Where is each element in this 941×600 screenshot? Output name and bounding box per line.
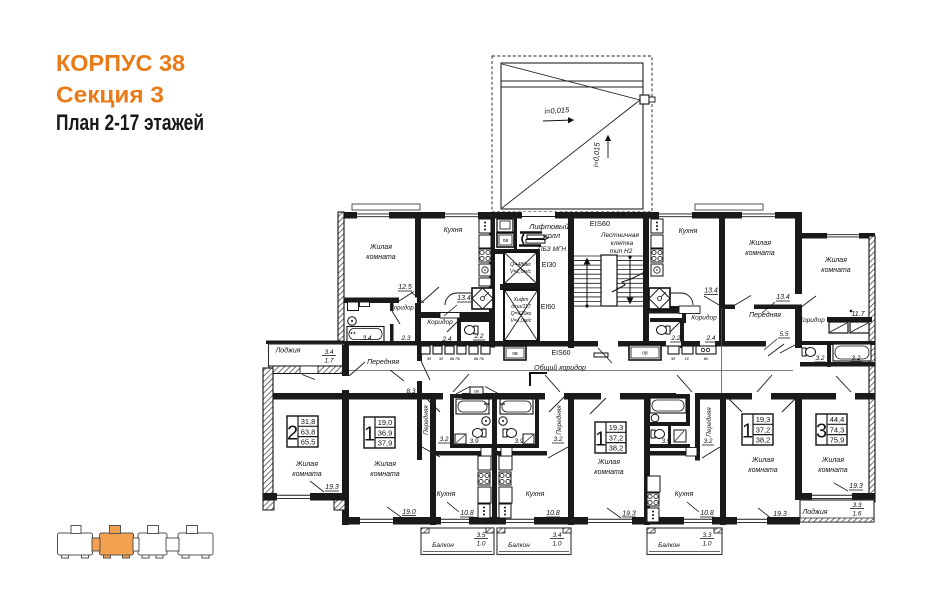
svg-text:19.0: 19.0: [402, 509, 416, 516]
svg-text:Жилая: Жилая: [748, 240, 771, 247]
svg-text:Передняя: Передняя: [749, 311, 781, 319]
svg-text:ПБЗ МГН: ПБЗ МГН: [538, 246, 567, 253]
svg-text:3.2: 3.2: [703, 438, 712, 445]
svg-text:13.4: 13.4: [704, 288, 718, 295]
svg-text:5.5: 5.5: [779, 331, 788, 338]
svg-text:Хифт: Хифт: [512, 297, 529, 303]
svg-text:37,2: 37,2: [756, 425, 771, 434]
svg-text:Жилая: Жилая: [295, 461, 318, 468]
svg-text:Жилая: Жилая: [751, 457, 774, 464]
svg-text:План 2-17 этажей: План 2-17 этажей: [56, 110, 204, 135]
svg-text:эл: эл: [671, 356, 676, 361]
svg-text:ов: ов: [512, 351, 518, 357]
svg-text:37,2: 37,2: [609, 433, 624, 442]
svg-text:3.2: 3.2: [439, 436, 448, 443]
svg-text:Лифтовый: Лифтовый: [528, 222, 569, 231]
svg-text:3.9: 3.9: [469, 438, 478, 445]
svg-text:Передняя: Передняя: [555, 405, 563, 435]
svg-text:Жилая: Жилая: [369, 244, 392, 251]
svg-text:Кухня: Кухня: [437, 491, 456, 498]
svg-text:3.3: 3.3: [702, 532, 711, 539]
svg-text:19.3: 19.3: [622, 511, 636, 518]
svg-text:2.2: 2.2: [670, 335, 680, 342]
svg-text:10.8: 10.8: [546, 510, 560, 517]
svg-text:19,3: 19,3: [609, 423, 624, 432]
svg-text:36,9: 36,9: [378, 428, 393, 437]
svg-text:65,5: 65,5: [301, 438, 316, 447]
svg-text:3.4: 3.4: [324, 349, 333, 356]
svg-text:Передняя: Передняя: [367, 358, 399, 366]
svg-text:10.8: 10.8: [460, 510, 474, 517]
svg-text:ов: ов: [503, 238, 509, 244]
svg-text:3.9: 3.9: [661, 438, 670, 445]
svg-text:V=1,0м/с: V=1,0м/с: [510, 318, 532, 324]
svg-text:19.3: 19.3: [325, 484, 339, 491]
svg-text:ЕІS60: ЕІS60: [590, 219, 610, 228]
svg-text:Жилая: Жилая: [824, 257, 847, 264]
svg-text:ов: ов: [474, 389, 479, 394]
svg-text:74,3: 74,3: [830, 425, 845, 434]
svg-text:2: 2: [287, 423, 298, 445]
svg-text:13.4: 13.4: [457, 295, 471, 302]
svg-text:Кухня: Кухня: [526, 491, 545, 498]
svg-text:Жилая: Жилая: [821, 457, 844, 464]
svg-text:3.9: 3.9: [514, 438, 523, 445]
svg-text:44,4: 44,4: [830, 415, 845, 424]
svg-text:2.4: 2.4: [441, 336, 451, 343]
svg-text:1.6: 1.6: [852, 511, 861, 518]
svg-text:3.4: 3.4: [552, 532, 561, 539]
svg-text:Лоджия: Лоджия: [801, 508, 827, 516]
svg-text:комната: комната: [748, 467, 777, 474]
svg-text:комната: комната: [818, 467, 847, 474]
svg-text:3.2: 3.2: [553, 436, 562, 443]
svg-text:3.5: 3.5: [476, 532, 485, 539]
svg-text:Кухня: Кухня: [679, 228, 698, 235]
svg-text:75,9: 75,9: [830, 436, 845, 445]
svg-text:Жилая: Жилая: [373, 461, 396, 468]
svg-text:19.3: 19.3: [773, 511, 787, 518]
svg-text:Передняя: Передняя: [422, 405, 430, 435]
svg-text:ЕІ60: ЕІ60: [541, 304, 556, 311]
svg-text:1: 1: [595, 429, 606, 451]
svg-text:19.3: 19.3: [849, 483, 863, 490]
svg-text:комната: комната: [821, 267, 850, 274]
svg-text:Балкон: Балкон: [508, 542, 530, 549]
svg-text:2.4: 2.4: [705, 335, 715, 342]
svg-text:V=1,0м/с: V=1,0м/с: [510, 269, 532, 275]
svg-text:Секция 3: Секция 3: [56, 82, 164, 108]
svg-text:i=0,015: i=0,015: [591, 141, 601, 167]
svg-text:31,8: 31,8: [301, 417, 316, 426]
svg-text:комната: комната: [366, 254, 395, 261]
svg-text:ЕІS60: ЕІS60: [551, 350, 570, 357]
svg-text:63,8: 63,8: [301, 427, 316, 436]
svg-text:КОРПУС 38: КОРПУС 38: [56, 50, 185, 76]
svg-text:комната: комната: [370, 471, 399, 478]
svg-text:Коридор: Коридор: [799, 316, 825, 324]
svg-text:19,0: 19,0: [378, 418, 393, 427]
svg-text:Коридор: Коридор: [691, 314, 717, 322]
svg-text:Жилая: Жилая: [597, 459, 620, 466]
svg-text:i=0,015: i=0,015: [544, 105, 570, 116]
svg-text:1: 1: [742, 421, 753, 443]
svg-text:дхш/117: дхш/117: [511, 304, 532, 310]
svg-text:Балкон: Балкон: [432, 542, 454, 549]
svg-text:Лоджия: Лоджия: [274, 347, 300, 355]
svg-text:38,2: 38,2: [756, 436, 771, 445]
svg-text:12.5: 12.5: [398, 284, 412, 291]
svg-text:Кухня: Кухня: [444, 227, 463, 234]
svg-text:1.0: 1.0: [552, 541, 561, 548]
svg-text:1: 1: [364, 424, 375, 446]
svg-text:Q=630кг: Q=630кг: [511, 311, 532, 317]
svg-text:Q=480кг: Q=480кг: [510, 262, 531, 268]
svg-text:клетка: клетка: [611, 240, 634, 247]
svg-text:Коридор: Коридор: [390, 306, 414, 312]
svg-text:комната: комната: [594, 469, 623, 476]
svg-text:3.4: 3.4: [362, 335, 371, 342]
svg-text:2.3: 2.3: [400, 335, 410, 342]
svg-text:Передняя: Передняя: [705, 407, 713, 437]
svg-text:2.2: 2.2: [473, 333, 483, 340]
svg-text:Кухня: Кухня: [675, 491, 694, 498]
svg-text:Коридор: Коридор: [427, 318, 453, 326]
svg-text:3.3: 3.3: [852, 502, 861, 509]
svg-text:38,2: 38,2: [609, 444, 624, 453]
svg-text:ов: ов: [642, 351, 648, 357]
svg-text:ЕІ30: ЕІ30: [542, 262, 557, 269]
svg-text:вк пк: вк пк: [450, 356, 461, 361]
svg-text:тип Н2: тип Н2: [610, 248, 633, 255]
svg-text:3.2: 3.2: [851, 355, 860, 362]
svg-text:8.3: 8.3: [406, 388, 415, 395]
svg-text:вк пк: вк пк: [474, 356, 485, 361]
svg-text:11.7: 11.7: [851, 311, 865, 318]
svg-text:13.4: 13.4: [776, 294, 790, 301]
svg-text:37,9: 37,9: [378, 439, 393, 448]
svg-text:3: 3: [816, 421, 827, 443]
svg-text:1.0: 1.0: [476, 541, 485, 548]
svg-text:эл: эл: [439, 356, 444, 361]
svg-text:комната: комната: [745, 250, 774, 257]
svg-text:эл: эл: [427, 356, 432, 361]
svg-text:Балкон: Балкон: [658, 542, 680, 549]
svg-text:3.2: 3.2: [815, 355, 824, 362]
svg-text:комната: комната: [292, 471, 321, 478]
svg-text:10.8: 10.8: [700, 510, 714, 517]
svg-text:1.0: 1.0: [702, 541, 711, 548]
svg-text:Общий коридор: Общий коридор: [534, 364, 586, 372]
svg-text:Лестничная: Лестничная: [600, 232, 639, 239]
svg-text:19,3: 19,3: [756, 415, 771, 424]
svg-text:1.7: 1.7: [324, 358, 333, 365]
